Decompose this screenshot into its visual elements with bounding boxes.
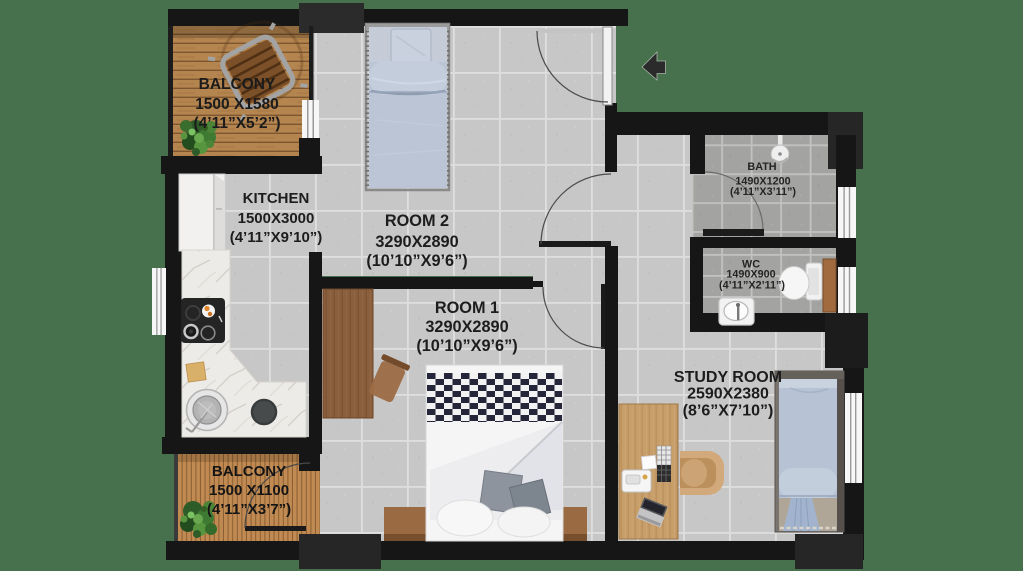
svg-text:1500 X1100: 1500 X1100 [209,482,289,499]
svg-text:STUDY ROOM: STUDY ROOM [674,369,782,386]
svg-text:1500X3000: 1500X3000 [238,210,315,227]
svg-text:(8’6”X7’10”): (8’6”X7’10”) [683,403,774,420]
svg-text:2590X2380: 2590X2380 [687,386,769,403]
svg-text:BALCONY: BALCONY [199,76,276,93]
svg-text:KITCHEN: KITCHEN [243,190,310,207]
svg-text:ROOM 1: ROOM 1 [435,299,499,317]
svg-text:(4’11”X5’2”): (4’11”X5’2”) [193,115,280,132]
svg-text:(10’10”X9’6”): (10’10”X9’6”) [416,337,517,355]
svg-text:(10’10”X9’6”): (10’10”X9’6”) [366,252,467,270]
svg-text:(4’11”X2’11”): (4’11”X2’11”) [719,280,785,292]
svg-text:ROOM 2: ROOM 2 [385,212,449,230]
svg-text:BATH: BATH [747,161,776,173]
svg-text:1500 X1580: 1500 X1580 [195,96,279,113]
svg-text:BALCONY: BALCONY [212,463,286,480]
svg-text:(4’11”X9’10”): (4’11”X9’10”) [230,229,323,246]
svg-text:(4’11”X3’11”): (4’11”X3’11”) [730,186,796,198]
svg-text:(4’11”X3’7”): (4’11”X3’7”) [207,501,291,518]
svg-text:3290X2890: 3290X2890 [425,318,508,336]
svg-text:3290X2890: 3290X2890 [375,233,458,251]
